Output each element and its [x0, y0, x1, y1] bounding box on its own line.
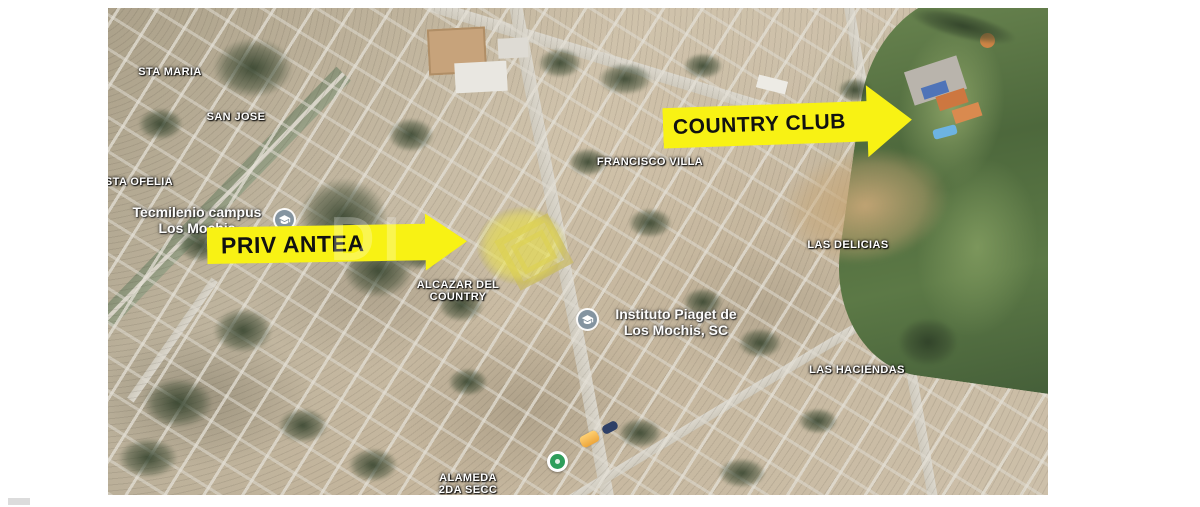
vegetation-patch — [538, 48, 582, 78]
vegetation-patch — [143, 378, 213, 428]
vegetation-patch — [118, 438, 178, 478]
white-roof-building-2 — [497, 37, 528, 59]
vegetation-patch — [798, 408, 838, 434]
region-label-las-haciendas: LAS HACIENDAS — [809, 364, 905, 376]
poi-label-instituto-piaget: Instituto Piaget de Los Mochis, SC — [615, 306, 736, 338]
vegetation-patch — [138, 108, 183, 140]
property-highlight-ellipse — [476, 206, 568, 286]
poi-label-instituto-piaget-line2: Los Mochis, SC — [624, 322, 728, 338]
region-label-sta-ofelia: STA OFELIA — [108, 176, 173, 188]
white-roof-building-1 — [454, 61, 507, 94]
watermark-text: DI — [330, 204, 408, 275]
region-label-sta-maria: STA MARIA — [138, 66, 201, 78]
vegetation-patch — [388, 118, 434, 152]
region-label-alcazar-line2: COUNTRY — [430, 291, 487, 303]
park-marker-icon — [547, 451, 568, 472]
region-label-alcazar-line1: ALCAZAR DEL — [417, 279, 500, 291]
vegetation-patch — [278, 408, 328, 443]
vegetation-patch — [598, 63, 652, 95]
corner-artifact — [8, 498, 30, 505]
region-label-alameda-line2: 2DA SECC — [439, 484, 497, 495]
region-label-alameda: ALAMEDA 2DA SECC — [439, 472, 497, 495]
region-label-san-jose: SAN JOSE — [207, 111, 266, 123]
poi-label-instituto-piaget-line1: Instituto Piaget de — [615, 306, 736, 322]
region-label-alcazar: ALCAZAR DEL COUNTRY — [417, 279, 500, 303]
vegetation-patch — [628, 208, 672, 238]
vegetation-patch — [448, 368, 488, 396]
vegetation-patch — [683, 53, 723, 79]
country-club-arrow: COUNTRY CLUB — [662, 84, 913, 165]
vegetation-patch — [213, 308, 273, 353]
vegetation-patch — [898, 318, 958, 366]
graduation-cap-icon — [578, 310, 597, 329]
vegetation-patch — [738, 328, 782, 358]
satellite-map: STA MARIA SAN JOSE STA OFELIA FRANCISCO … — [108, 8, 1048, 495]
vegetation-patch — [213, 38, 293, 98]
vegetation-patch — [348, 448, 398, 482]
vegetation-patch — [618, 418, 662, 448]
region-label-las-delicias: LAS DELICIAS — [807, 239, 888, 251]
vegetation-patch — [718, 458, 766, 488]
region-label-alameda-line1: ALAMEDA — [439, 472, 497, 484]
